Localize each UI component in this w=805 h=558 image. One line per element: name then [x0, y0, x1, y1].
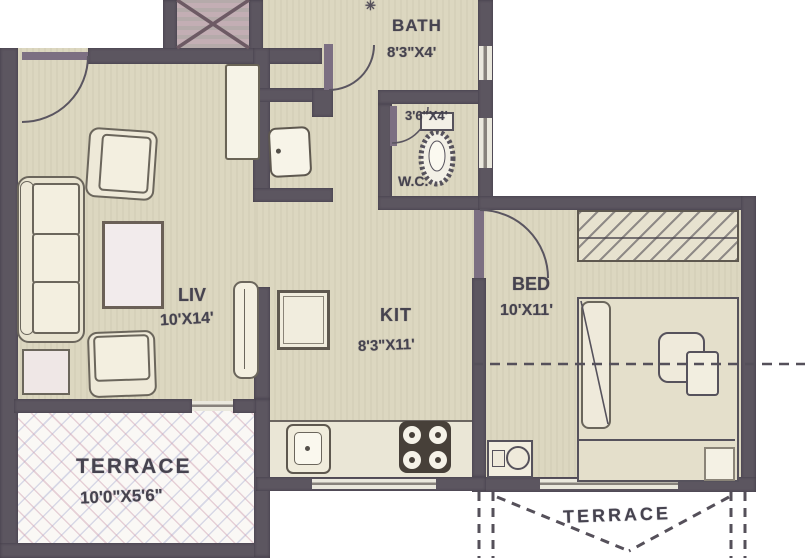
wall	[312, 88, 333, 117]
terrace-door-sill	[192, 401, 233, 411]
nightstand	[487, 440, 533, 478]
living-label: LIV	[178, 285, 206, 306]
bath-label: BATH	[392, 16, 442, 36]
coffee-table	[102, 221, 164, 309]
wall	[472, 278, 486, 477]
kitchen-cabinet	[277, 290, 330, 350]
wall	[88, 48, 322, 64]
wc-window	[479, 118, 492, 168]
kitchen-dims: 8'3"X11'	[358, 336, 415, 355]
entrance-door	[22, 52, 88, 60]
lamp	[506, 446, 530, 470]
kitchen-sink	[286, 424, 331, 474]
kitchen-label: KIT	[380, 305, 412, 326]
floor-plan: BATH 8'3"X4' 3'6"X4' W.C. KIT 8'3"X11' L…	[0, 0, 805, 558]
lift-shaft	[177, 0, 249, 48]
armchair	[87, 330, 157, 398]
bedroom-door	[474, 210, 484, 278]
asterisk-mark: ✳	[365, 0, 376, 14]
wc-dims: 3'6"X4'	[405, 108, 448, 123]
wc-door	[390, 106, 397, 146]
bath-dims: 8'3"X4'	[387, 44, 436, 61]
lower-terrace-label: TERRACE	[563, 503, 672, 528]
wall	[378, 196, 493, 210]
terrace-label: TERRACE	[76, 455, 192, 479]
kitchen-window	[312, 479, 436, 489]
wall	[378, 90, 493, 104]
bedroom-label: BED	[512, 274, 550, 295]
kitchen-hall-floor	[256, 0, 486, 491]
bath-window	[479, 46, 492, 80]
nightstand	[686, 351, 719, 396]
side-table	[22, 349, 70, 395]
terrace-dims: 10'0"X5'6"	[80, 486, 163, 509]
wall	[478, 0, 493, 210]
foyer-cabinet	[225, 64, 260, 160]
stove	[399, 421, 451, 473]
bedroom-dims: 10'X11'	[500, 302, 553, 320]
wall	[0, 48, 18, 557]
wall	[233, 399, 256, 413]
wall	[14, 399, 192, 413]
sofa	[17, 176, 85, 343]
wardrobe	[577, 210, 739, 262]
wc-label: W.C.	[398, 173, 428, 189]
wall	[478, 196, 756, 210]
wall	[741, 196, 756, 492]
bath-door	[324, 44, 333, 90]
wall	[253, 188, 333, 202]
tv-unit	[233, 281, 259, 379]
armchair	[85, 127, 159, 202]
living-dims: 10'X14'	[160, 310, 215, 331]
wash-basin	[268, 126, 313, 178]
pillow	[581, 301, 611, 429]
wall	[0, 543, 270, 558]
